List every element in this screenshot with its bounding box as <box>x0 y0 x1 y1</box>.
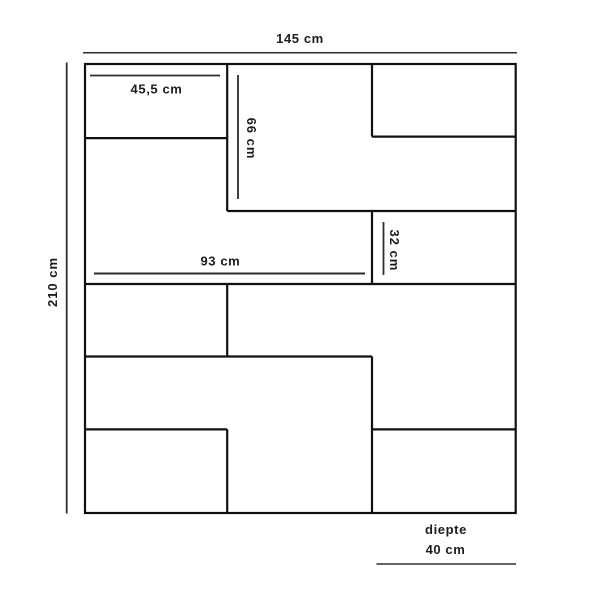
svg-text:diepte: diepte <box>425 522 467 537</box>
svg-text:210 cm: 210 cm <box>45 257 60 307</box>
svg-text:40 cm: 40 cm <box>426 542 466 557</box>
svg-text:145 cm: 145 cm <box>276 31 324 46</box>
svg-text:45,5 cm: 45,5 cm <box>131 82 183 97</box>
svg-text:66 cm: 66 cm <box>244 118 259 160</box>
svg-text:93 cm: 93 cm <box>200 254 240 269</box>
svg-text:32 cm: 32 cm <box>387 229 402 271</box>
